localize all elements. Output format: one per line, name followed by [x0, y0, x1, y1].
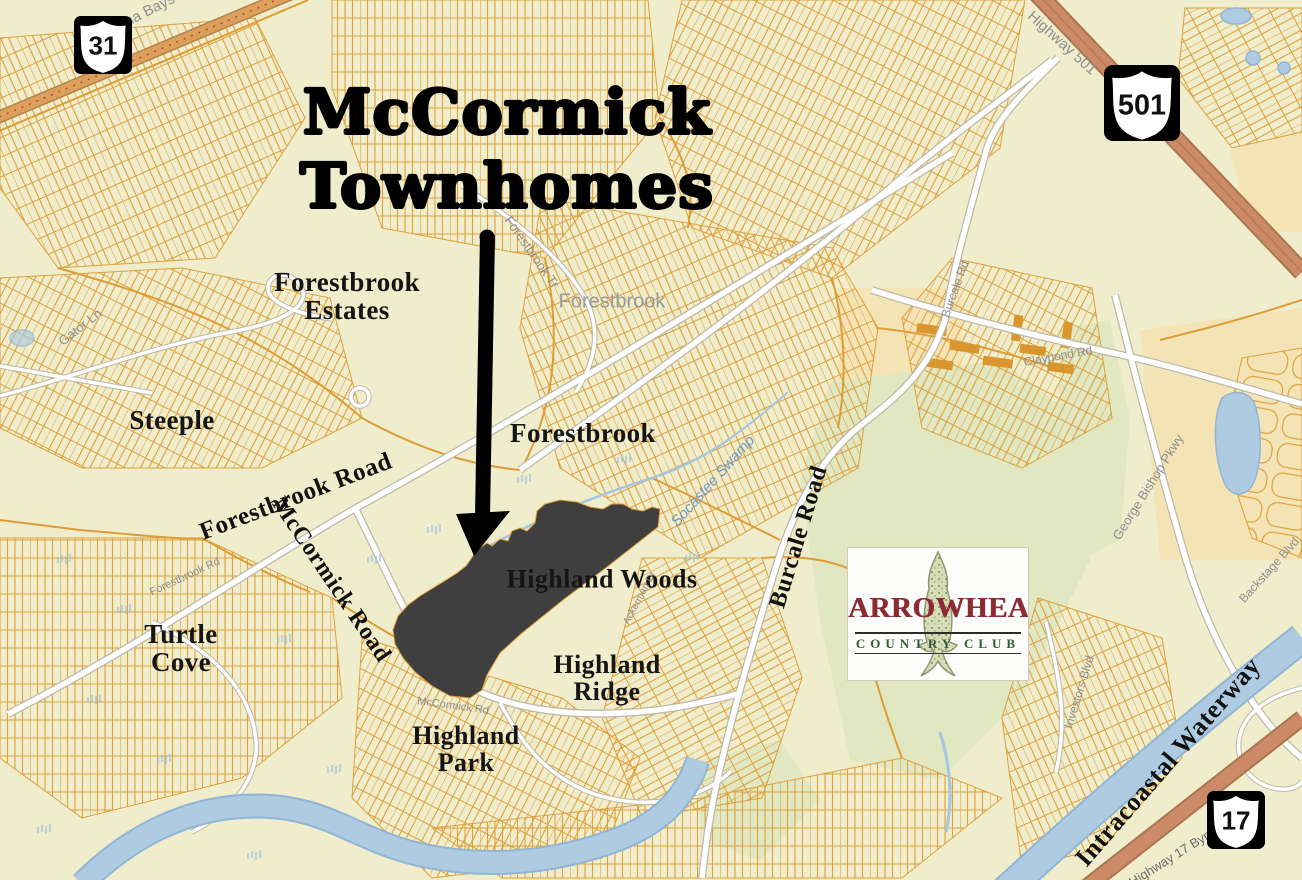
route-shield-501: 501 [1104, 65, 1180, 141]
logo-title: ARROWHEAD [848, 592, 1028, 625]
map-screenshot: McCormick Townhomes Forestbrook Estates … [0, 0, 1302, 880]
route-shield-501-number: 501 [1118, 89, 1166, 121]
arrowhead-country-club-logo: ARROWHEAD COUNTRY CLUB [847, 547, 1029, 681]
route-shield-17-number: 17 [1221, 806, 1250, 836]
route-shield-31: 31 [74, 16, 132, 74]
route-shield-31-number: 31 [88, 31, 117, 61]
route-shield-17: 17 [1207, 791, 1265, 849]
logo-subtitle: COUNTRY CLUB [855, 632, 1021, 654]
